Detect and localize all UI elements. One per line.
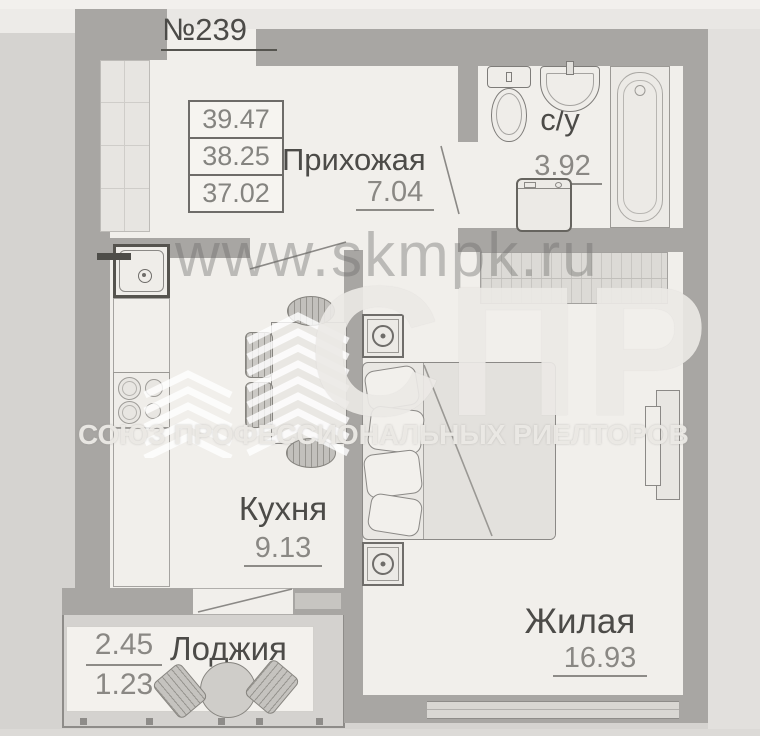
- floor-plan-photo: №239 39.47 38.25 37.02 Прихожая 7.04 с/у…: [0, 0, 760, 736]
- kitchen-door-swing: [250, 242, 346, 269]
- bed-blanket-line: [424, 365, 492, 536]
- balcony-door-swing: [198, 589, 292, 612]
- door-swing-lines: [0, 0, 760, 736]
- bathroom-door-swing: [441, 146, 459, 214]
